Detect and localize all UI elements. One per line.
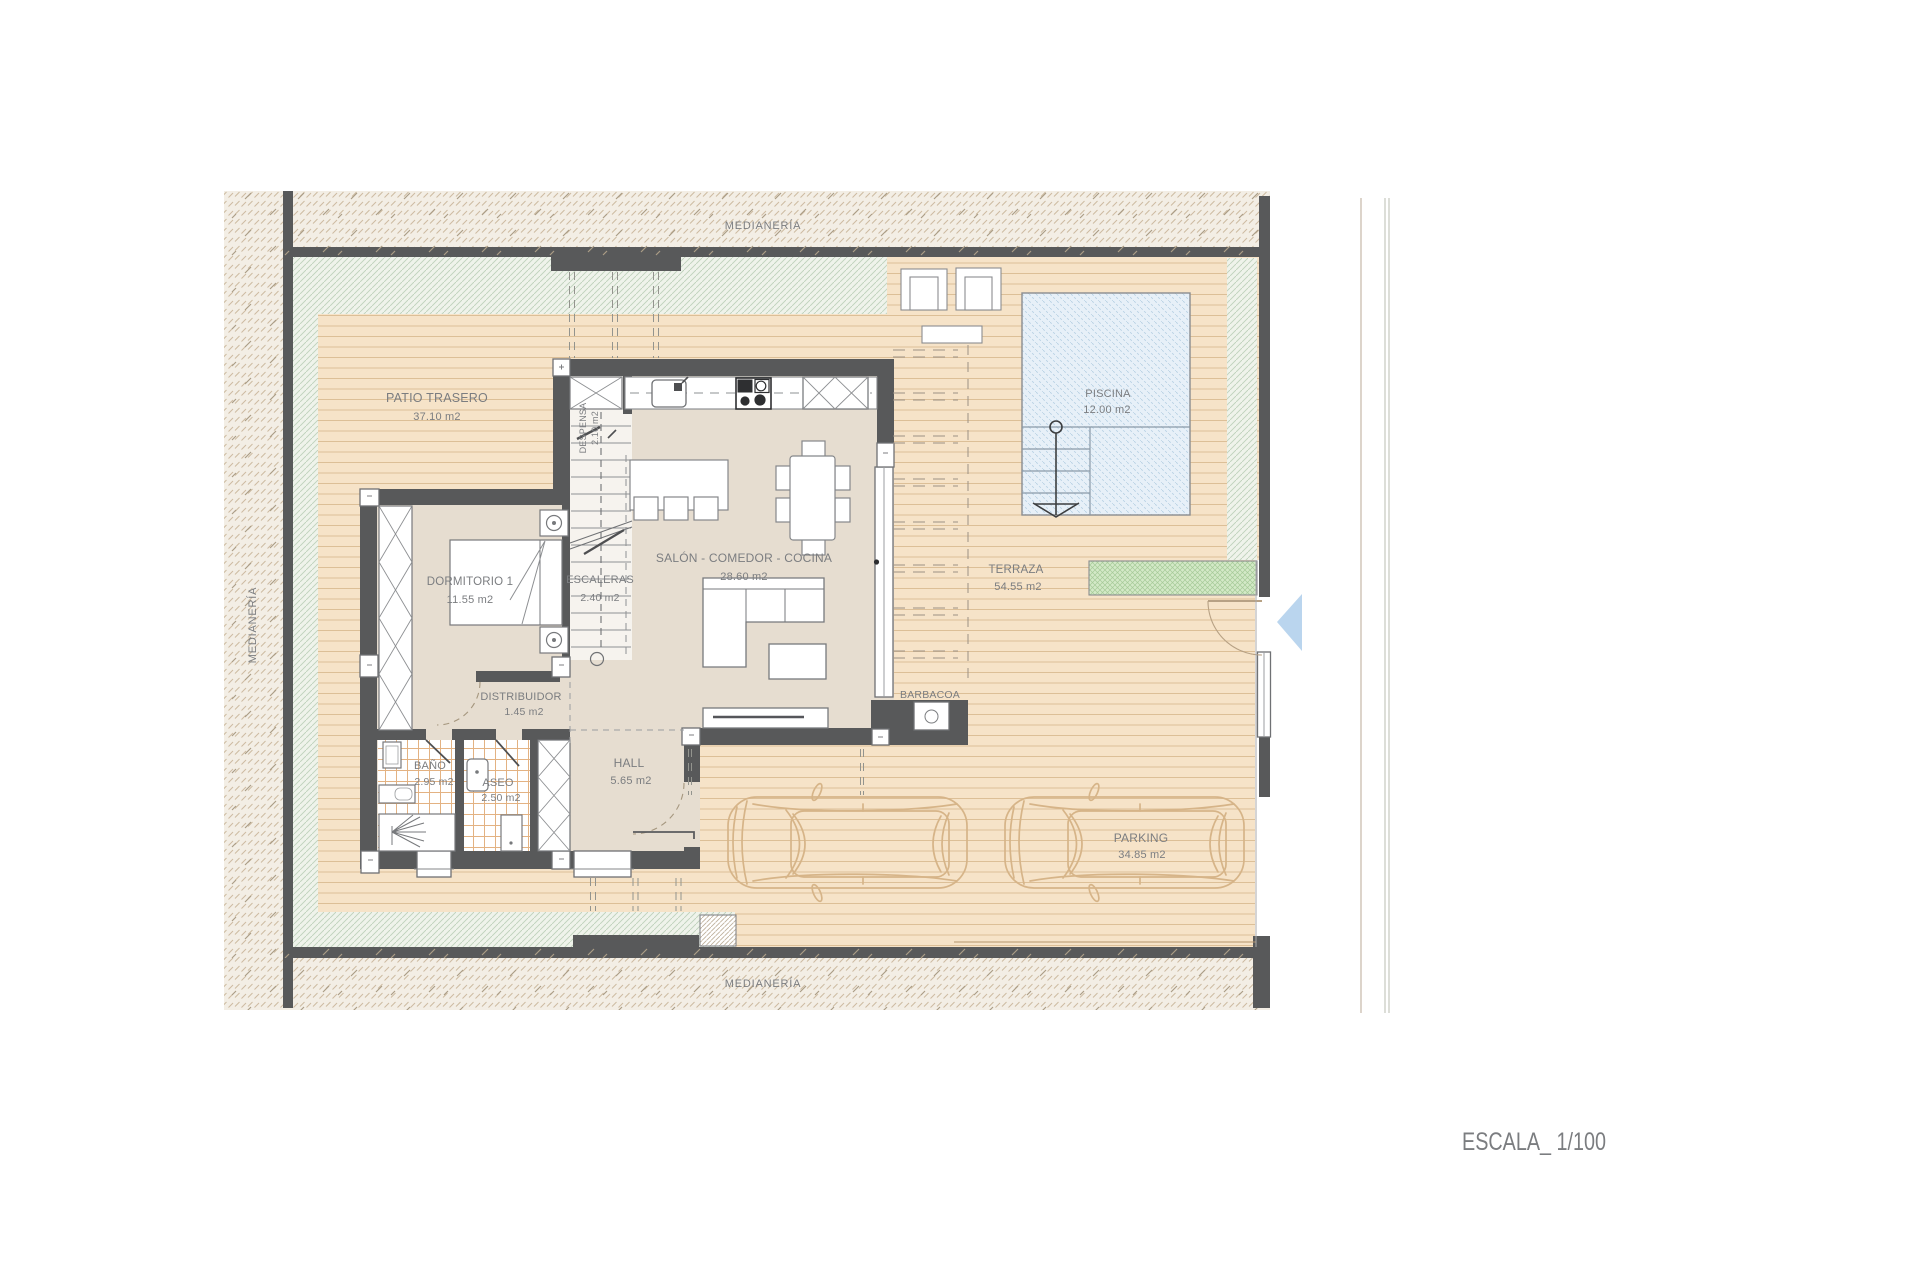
svg-text:TERRAZA: TERRAZA: [988, 564, 1043, 576]
svg-text:DISTRIBUIDOR: DISTRIBUIDOR: [480, 691, 561, 703]
svg-text:34.85 m2: 34.85 m2: [1118, 849, 1165, 861]
svg-text:SALÓN - COMEDOR - COCINA: SALÓN - COMEDOR - COCINA: [656, 550, 832, 565]
svg-text:HALL: HALL: [614, 756, 645, 770]
svg-text:MEDIANERÍA: MEDIANERÍA: [725, 977, 801, 990]
svg-text:28.60 m2: 28.60 m2: [720, 571, 767, 583]
svg-text:BAÑO: BAÑO: [414, 759, 446, 772]
svg-text:ASEO: ASEO: [482, 777, 514, 789]
svg-text:MEDIANERÍA: MEDIANERÍA: [725, 219, 801, 232]
svg-text:PARKING: PARKING: [1114, 831, 1169, 845]
svg-text:ESCALA_ 1/100: ESCALA_ 1/100: [1462, 1128, 1606, 1156]
svg-text:54.55 m2: 54.55 m2: [994, 581, 1041, 593]
svg-text:2.95 m2: 2.95 m2: [414, 776, 453, 788]
svg-text:1.45 m2: 1.45 m2: [504, 706, 543, 718]
svg-text:11.55 m2: 11.55 m2: [447, 594, 494, 606]
svg-text:PISCINA: PISCINA: [1085, 388, 1131, 400]
svg-text:12.00 m2: 12.00 m2: [1083, 404, 1130, 416]
svg-text:2.50 m2: 2.50 m2: [481, 792, 520, 804]
svg-text:5.65 m2: 5.65 m2: [610, 775, 651, 787]
svg-text:ESCALERAS: ESCALERAS: [566, 574, 634, 586]
svg-text:2.40 m2: 2.40 m2: [580, 592, 619, 604]
svg-text:BARBACOA: BARBACOA: [900, 689, 960, 701]
svg-text:MEDIANERÍA: MEDIANERÍA: [246, 587, 259, 663]
svg-text:PATIO TRASERO: PATIO TRASERO: [386, 391, 488, 405]
svg-text:DESPENSA: DESPENSA: [578, 403, 588, 454]
svg-text:DORMITORIO 1: DORMITORIO 1: [427, 576, 514, 588]
svg-text:2.10 m2: 2.10 m2: [590, 411, 600, 445]
svg-text:37.10 m2: 37.10 m2: [413, 411, 460, 423]
